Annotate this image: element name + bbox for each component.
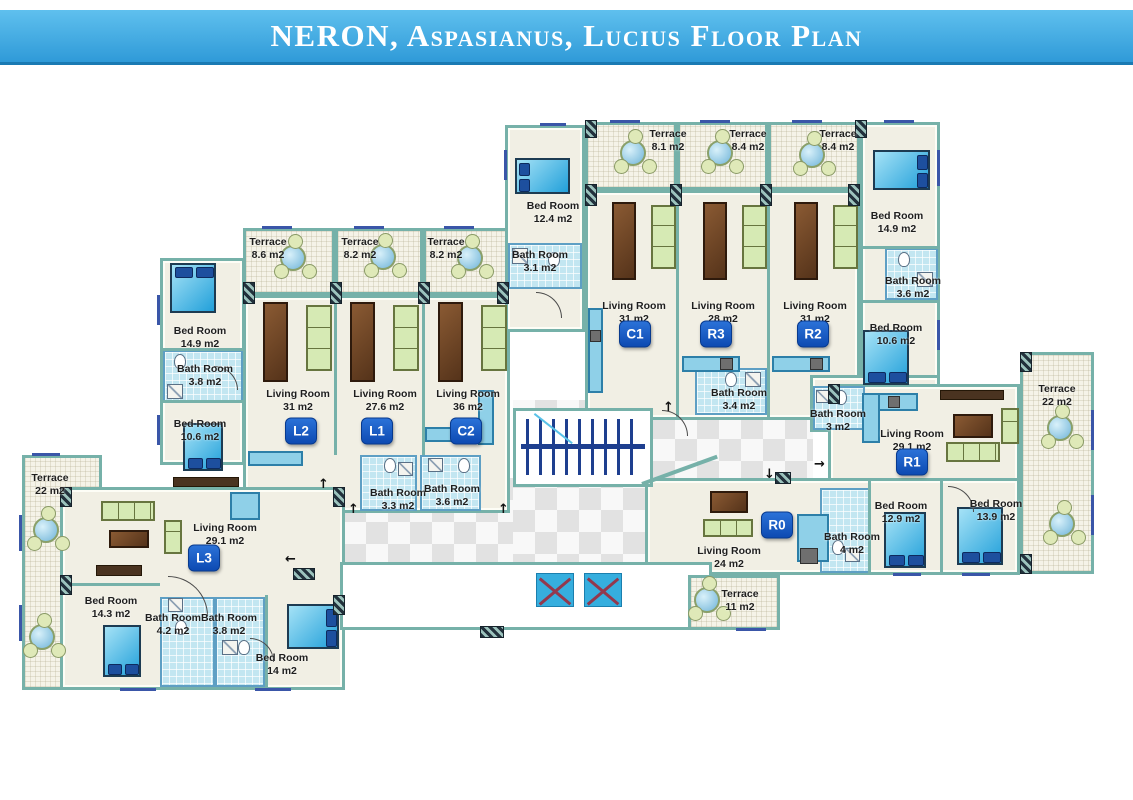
window — [19, 605, 22, 641]
elevator-x-icon — [536, 573, 574, 607]
window — [540, 123, 566, 126]
sofa-icon — [946, 442, 1000, 462]
floor-plan: ↑↑↑↑↓→←Terrace8.1 m2Terrace8.4 m2Terrace… — [0, 0, 1133, 800]
room-area: 4 m2 — [824, 544, 880, 557]
room-area: 8.6 m2 — [249, 249, 286, 262]
room-name: Bath Room — [201, 612, 257, 625]
bed-icon — [103, 625, 141, 677]
unit-badge-l2: L2 — [285, 418, 317, 445]
interior-wall — [160, 400, 245, 403]
window — [937, 320, 940, 350]
room-name: Bed Room — [85, 595, 138, 608]
kitchen-counter-icon — [248, 451, 303, 466]
room-label: Terrace8.6 m2 — [249, 236, 286, 261]
window — [444, 226, 474, 229]
entry-arrow: ↑ — [348, 503, 362, 517]
room-area: 14.9 m2 — [871, 223, 924, 236]
room-label: Bath Room3.8 m2 — [177, 363, 233, 388]
window — [32, 453, 60, 456]
room-label: Terrace22 m2 — [1038, 383, 1075, 408]
room-name: Bed Room — [256, 652, 309, 665]
brown-icon — [710, 491, 748, 513]
interior-wall — [63, 583, 160, 586]
terrace-table-icon — [694, 587, 720, 613]
wall-hatch — [585, 120, 597, 138]
room-area: 3.6 m2 — [424, 496, 480, 509]
room-label: Living Room27.6 m2 — [353, 388, 417, 413]
unit-badge-r2: R2 — [797, 321, 829, 348]
room-area: 8.1 m2 — [649, 141, 686, 154]
terrace-table-icon — [1047, 415, 1073, 441]
stairs-icon — [526, 419, 640, 475]
wall-hatch — [60, 575, 72, 595]
room-label: Bed Room14.3 m2 — [85, 595, 138, 620]
room-name: Bath Room — [177, 363, 233, 376]
room-area: 3.4 m2 — [711, 400, 767, 413]
bed-icon — [287, 604, 339, 649]
window — [157, 415, 160, 445]
brown-icon — [263, 302, 288, 382]
room-label: Bed Room14.9 m2 — [174, 325, 227, 350]
stove-icon — [590, 330, 601, 342]
wall-hatch — [1020, 352, 1032, 372]
entry-arrow: ← — [285, 553, 299, 567]
room-area: 3 m2 — [810, 421, 866, 434]
room-area: 27.6 m2 — [353, 401, 417, 414]
room-area: 14.3 m2 — [85, 608, 138, 621]
unit-badge-c2: C2 — [450, 418, 482, 445]
kitchen-counter-icon — [230, 492, 260, 520]
wall-hatch — [243, 282, 255, 304]
room-label: Bed Room12.9 m2 — [875, 500, 928, 525]
shower-icon — [745, 372, 761, 387]
room-name: Bed Room — [174, 325, 227, 338]
room-area: 12.9 m2 — [875, 513, 928, 526]
window — [937, 150, 940, 186]
brown-icon — [703, 202, 727, 280]
shower-icon — [428, 458, 443, 472]
room-area: 13.9 m2 — [970, 511, 1023, 524]
terrace-table-icon — [620, 140, 646, 166]
interior-wall — [940, 478, 943, 575]
entry-arrow: ↓ — [764, 468, 778, 482]
room-name: Living Room — [602, 300, 666, 313]
sofa-icon — [1001, 408, 1019, 444]
terrace-table-icon — [29, 624, 55, 650]
unit-badge-c1: C1 — [619, 321, 651, 348]
shelf-icon — [940, 390, 1004, 400]
room-area: 22 m2 — [1038, 396, 1075, 409]
room-label: Bath Room4.2 m2 — [145, 612, 201, 637]
stove-icon — [888, 396, 900, 408]
sofa-icon — [306, 305, 332, 371]
room-area: 3.8 m2 — [201, 625, 257, 638]
room-name: Terrace — [819, 128, 856, 141]
room-area: 14 m2 — [256, 665, 309, 678]
room-label: Terrace8.2 m2 — [341, 236, 378, 261]
room-name: Terrace — [721, 588, 758, 601]
stove-icon — [800, 548, 818, 564]
wall-hatch — [848, 184, 860, 206]
room-area: 31 m2 — [266, 401, 330, 414]
room-area: 11 m2 — [721, 601, 758, 614]
unit-badge-l1: L1 — [361, 418, 393, 445]
room-label: Bed Room12.4 m2 — [527, 200, 580, 225]
room-name: Living Room — [436, 388, 500, 401]
bed-icon — [170, 263, 216, 313]
brown-icon — [794, 202, 818, 280]
room-label: Bath Room3.6 m2 — [424, 483, 480, 508]
entrance-hall — [340, 562, 712, 630]
sofa-icon — [651, 205, 676, 269]
stove-icon — [720, 358, 733, 370]
unit-badge-r0: R0 — [761, 512, 793, 539]
wall-hatch — [330, 282, 342, 304]
room-name: Bath Room — [370, 487, 426, 500]
room-area: 3.1 m2 — [512, 262, 568, 275]
room-name: Bed Room — [875, 500, 928, 513]
room-area: 3.8 m2 — [177, 376, 233, 389]
entry-arrow: ↑ — [663, 401, 677, 415]
shelf-icon — [96, 565, 142, 576]
sofa-icon — [393, 305, 419, 371]
room-name: Bath Room — [885, 275, 941, 288]
sofa-icon — [742, 205, 767, 269]
terrace-table-icon — [1049, 511, 1075, 537]
window — [157, 295, 160, 325]
window — [962, 573, 990, 576]
room-name: Terrace — [341, 236, 378, 249]
wall-hatch — [760, 184, 772, 206]
room-label: Terrace8.2 m2 — [427, 236, 464, 261]
wall-hatch — [418, 282, 430, 304]
room-label: Bath Room3.1 m2 — [512, 249, 568, 274]
brown-icon — [438, 302, 463, 382]
room-label: Bath Room3.4 m2 — [711, 387, 767, 412]
room-name: Living Room — [783, 300, 847, 313]
bed-icon — [515, 158, 570, 194]
sofa-icon — [481, 305, 507, 371]
room-name: Bath Room — [424, 483, 480, 496]
wall-hatch — [585, 184, 597, 206]
page-title: NERON, Aspasianus, Lucius Floor Plan — [271, 18, 863, 54]
shelf-icon — [173, 477, 239, 487]
window — [736, 628, 766, 631]
room-name: Terrace — [729, 128, 766, 141]
room-name: Terrace — [427, 236, 464, 249]
room-label: Living Room36 m2 — [436, 388, 500, 413]
brown-icon — [953, 414, 993, 438]
room-name: Bed Room — [174, 418, 227, 431]
room-name: Bed Room — [527, 200, 580, 213]
title-banner: NERON, Aspasianus, Lucius Floor Plan — [0, 10, 1133, 65]
unit-badge-l3: L3 — [188, 545, 220, 572]
room-area: 4.2 m2 — [145, 625, 201, 638]
window — [1091, 495, 1094, 535]
room-name: Bath Room — [711, 387, 767, 400]
entry-arrow: → — [814, 458, 828, 472]
window — [19, 515, 22, 551]
wall-hatch — [1020, 554, 1032, 574]
toilet-icon — [898, 252, 910, 267]
elevator-x-icon — [584, 573, 622, 607]
window — [610, 120, 640, 123]
interior-wall — [334, 295, 337, 455]
room-name: Bath Room — [512, 249, 568, 262]
room-label: Terrace8.1 m2 — [649, 128, 686, 153]
wall-hatch — [828, 384, 840, 404]
brown-icon — [612, 202, 636, 280]
shower-icon — [398, 462, 413, 476]
room-name: Terrace — [1038, 383, 1075, 396]
room-name: Bath Room — [810, 408, 866, 421]
room-area: 24 m2 — [697, 558, 761, 571]
room-area: 8.2 m2 — [341, 249, 378, 262]
room-label: Bath Room4 m2 — [824, 531, 880, 556]
window — [700, 120, 730, 123]
window — [354, 226, 384, 229]
sofa-icon — [164, 520, 182, 554]
window — [893, 573, 921, 576]
interior-wall — [676, 190, 679, 420]
brown-icon — [350, 302, 375, 382]
room-label: Terrace8.4 m2 — [819, 128, 856, 153]
room-label: Bed Room10.6 m2 — [870, 322, 923, 347]
sofa-icon — [101, 501, 155, 521]
terrace-table-icon — [33, 517, 59, 543]
room-name: Terrace — [31, 472, 68, 485]
interior-wall — [868, 478, 871, 575]
sofa-icon — [703, 519, 753, 537]
brown-icon — [109, 530, 149, 548]
room-label: Bath Room3.3 m2 — [370, 487, 426, 512]
room-area: 14.9 m2 — [174, 338, 227, 351]
room-area: 36 m2 — [436, 401, 500, 414]
window — [884, 120, 914, 123]
room-name: Living Room — [353, 388, 417, 401]
wall-hatch — [855, 120, 867, 138]
window — [504, 150, 507, 180]
interior-wall — [767, 190, 770, 420]
room-label: Terrace22 m2 — [31, 472, 68, 497]
room-name: Bath Room — [145, 612, 201, 625]
room-name: Bed Room — [870, 322, 923, 335]
window — [120, 688, 156, 691]
wall-hatch — [333, 595, 345, 615]
room-name: Bed Room — [871, 210, 924, 223]
room-name: Living Room — [266, 388, 330, 401]
room-area: 10.6 m2 — [174, 431, 227, 444]
room-name: Living Room — [880, 428, 944, 441]
interior-wall — [860, 246, 940, 249]
toilet-icon — [725, 372, 737, 387]
room-label: Bed Room10.6 m2 — [174, 418, 227, 443]
wall-hatch — [497, 282, 509, 304]
room-name: Living Room — [193, 522, 257, 535]
room-label: Terrace8.4 m2 — [729, 128, 766, 153]
room-area: 8.2 m2 — [427, 249, 464, 262]
room-label: Bath Room3.8 m2 — [201, 612, 257, 637]
toilet-icon — [458, 458, 470, 473]
wall-hatch — [333, 487, 345, 507]
kitchen-counter-icon — [588, 308, 603, 393]
stove-icon — [810, 358, 823, 370]
room-area: 12.4 m2 — [527, 213, 580, 226]
room-label: Living Room24 m2 — [697, 545, 761, 570]
wall-hatch — [670, 184, 682, 206]
room-label: Living Room31 m2 — [266, 388, 330, 413]
window — [1091, 410, 1094, 450]
room-area: 3.3 m2 — [370, 500, 426, 513]
sofa-icon — [833, 205, 858, 269]
room-label: Bath Room3.6 m2 — [885, 275, 941, 300]
unit-badge-r3: R3 — [700, 321, 732, 348]
bed-icon — [873, 150, 930, 190]
room-label: Living Room29.1 m2 — [193, 522, 257, 547]
room-label: Terrace11 m2 — [721, 588, 758, 613]
wall-hatch — [480, 626, 504, 638]
room-name: Terrace — [249, 236, 286, 249]
interior-wall — [860, 300, 940, 303]
room-name: Living Room — [691, 300, 755, 313]
entry-arrow: ↑ — [498, 503, 512, 517]
room-name: Terrace — [649, 128, 686, 141]
toilet-icon — [384, 458, 396, 473]
entry-arrow: ↑ — [318, 478, 332, 492]
room-area: 10.6 m2 — [870, 335, 923, 348]
room-label: Bed Room14.9 m2 — [871, 210, 924, 235]
room-area: 22 m2 — [31, 485, 68, 498]
unit-badge-r1: R1 — [896, 449, 928, 476]
shower-icon — [222, 640, 238, 655]
room-name: Bed Room — [970, 498, 1023, 511]
window — [262, 226, 292, 229]
room-label: Bath Room3 m2 — [810, 408, 866, 433]
wall-hatch — [293, 568, 315, 580]
room-area: 8.4 m2 — [729, 141, 766, 154]
window — [255, 688, 291, 691]
room-name: Bath Room — [824, 531, 880, 544]
room-area: 3.6 m2 — [885, 288, 941, 301]
toilet-icon — [238, 640, 250, 655]
room-label: Bed Room13.9 m2 — [970, 498, 1023, 523]
room-area: 8.4 m2 — [819, 141, 856, 154]
window — [792, 120, 822, 123]
room-name: Living Room — [697, 545, 761, 558]
room-label: Bed Room14 m2 — [256, 652, 309, 677]
